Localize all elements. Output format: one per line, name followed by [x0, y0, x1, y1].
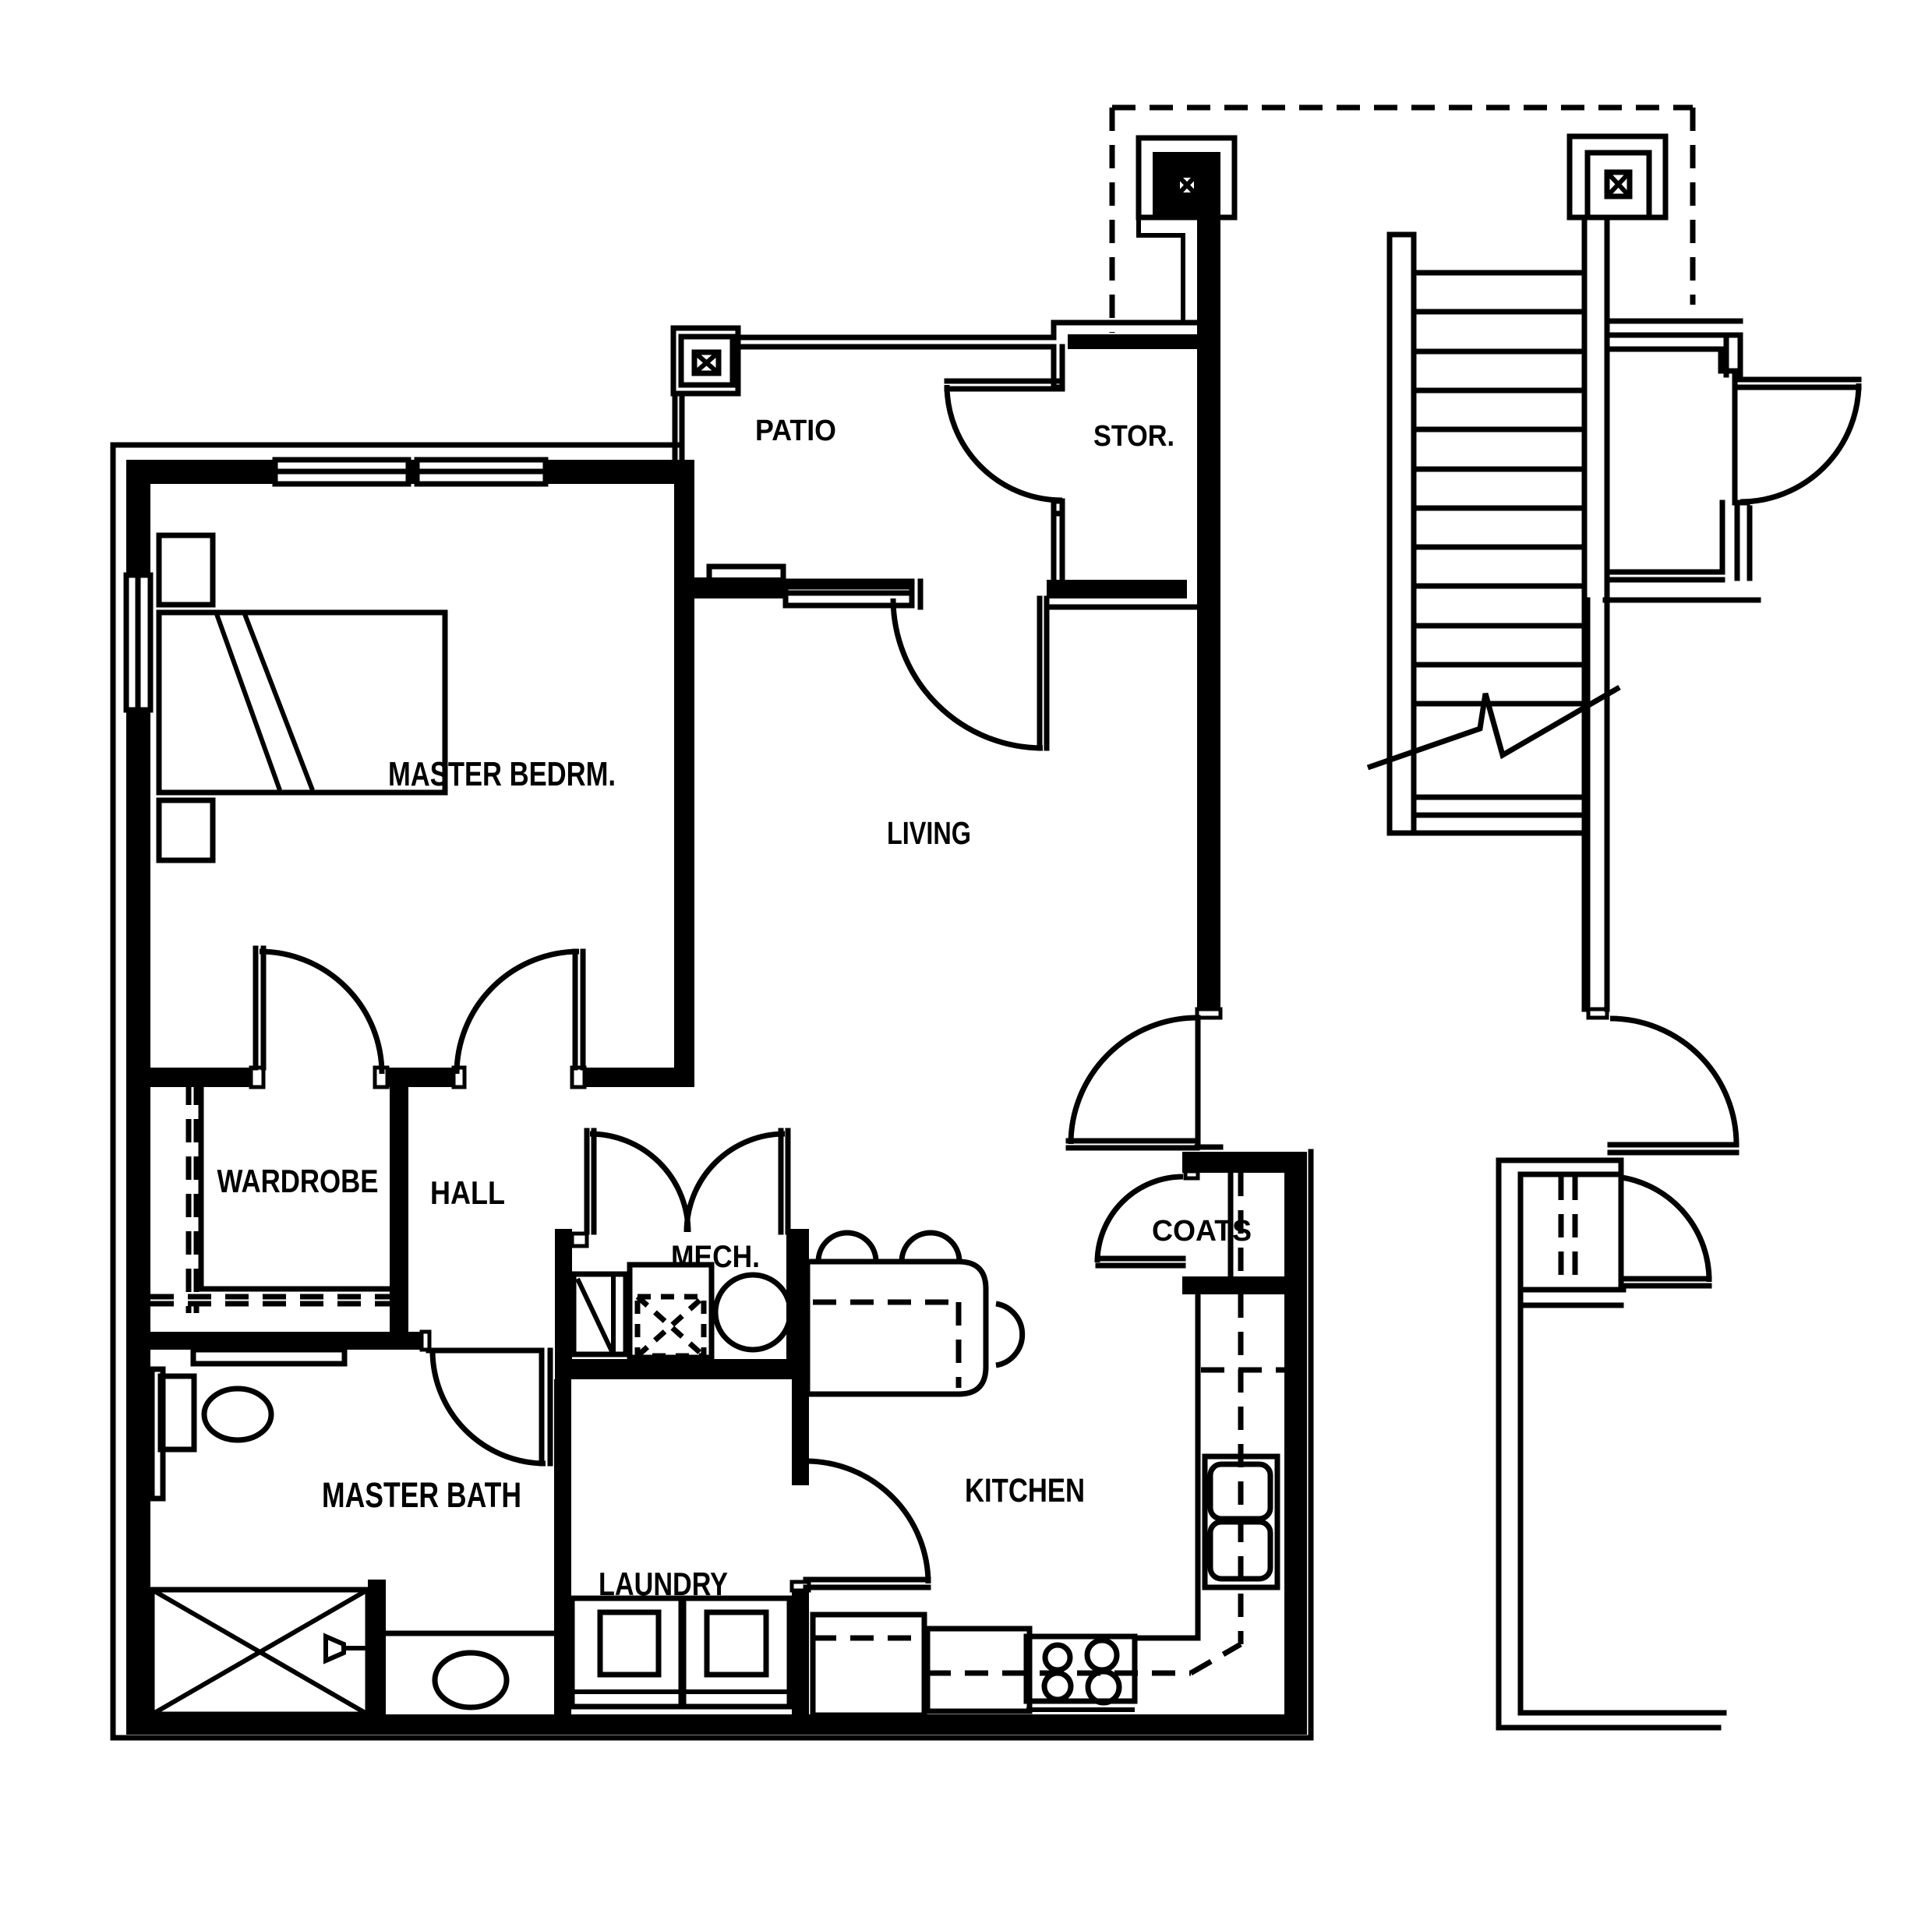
svg-text:LAUNDRY: LAUNDRY [599, 1566, 728, 1602]
svg-text:KITCHEN: KITCHEN [965, 1472, 1085, 1509]
svg-text:STOR.: STOR. [1093, 420, 1174, 453]
svg-text:HALL: HALL [430, 1174, 505, 1211]
svg-text:MASTER BEDRM.: MASTER BEDRM. [388, 755, 616, 793]
svg-text:COATS: COATS [1152, 1215, 1252, 1248]
svg-text:PATIO: PATIO [755, 415, 836, 447]
svg-text:MASTER BATH: MASTER BATH [322, 1475, 521, 1515]
svg-text:WARDROBE: WARDROBE [217, 1163, 379, 1199]
svg-text:LIVING: LIVING [887, 815, 971, 851]
svg-text:MECH.: MECH. [671, 1240, 760, 1274]
